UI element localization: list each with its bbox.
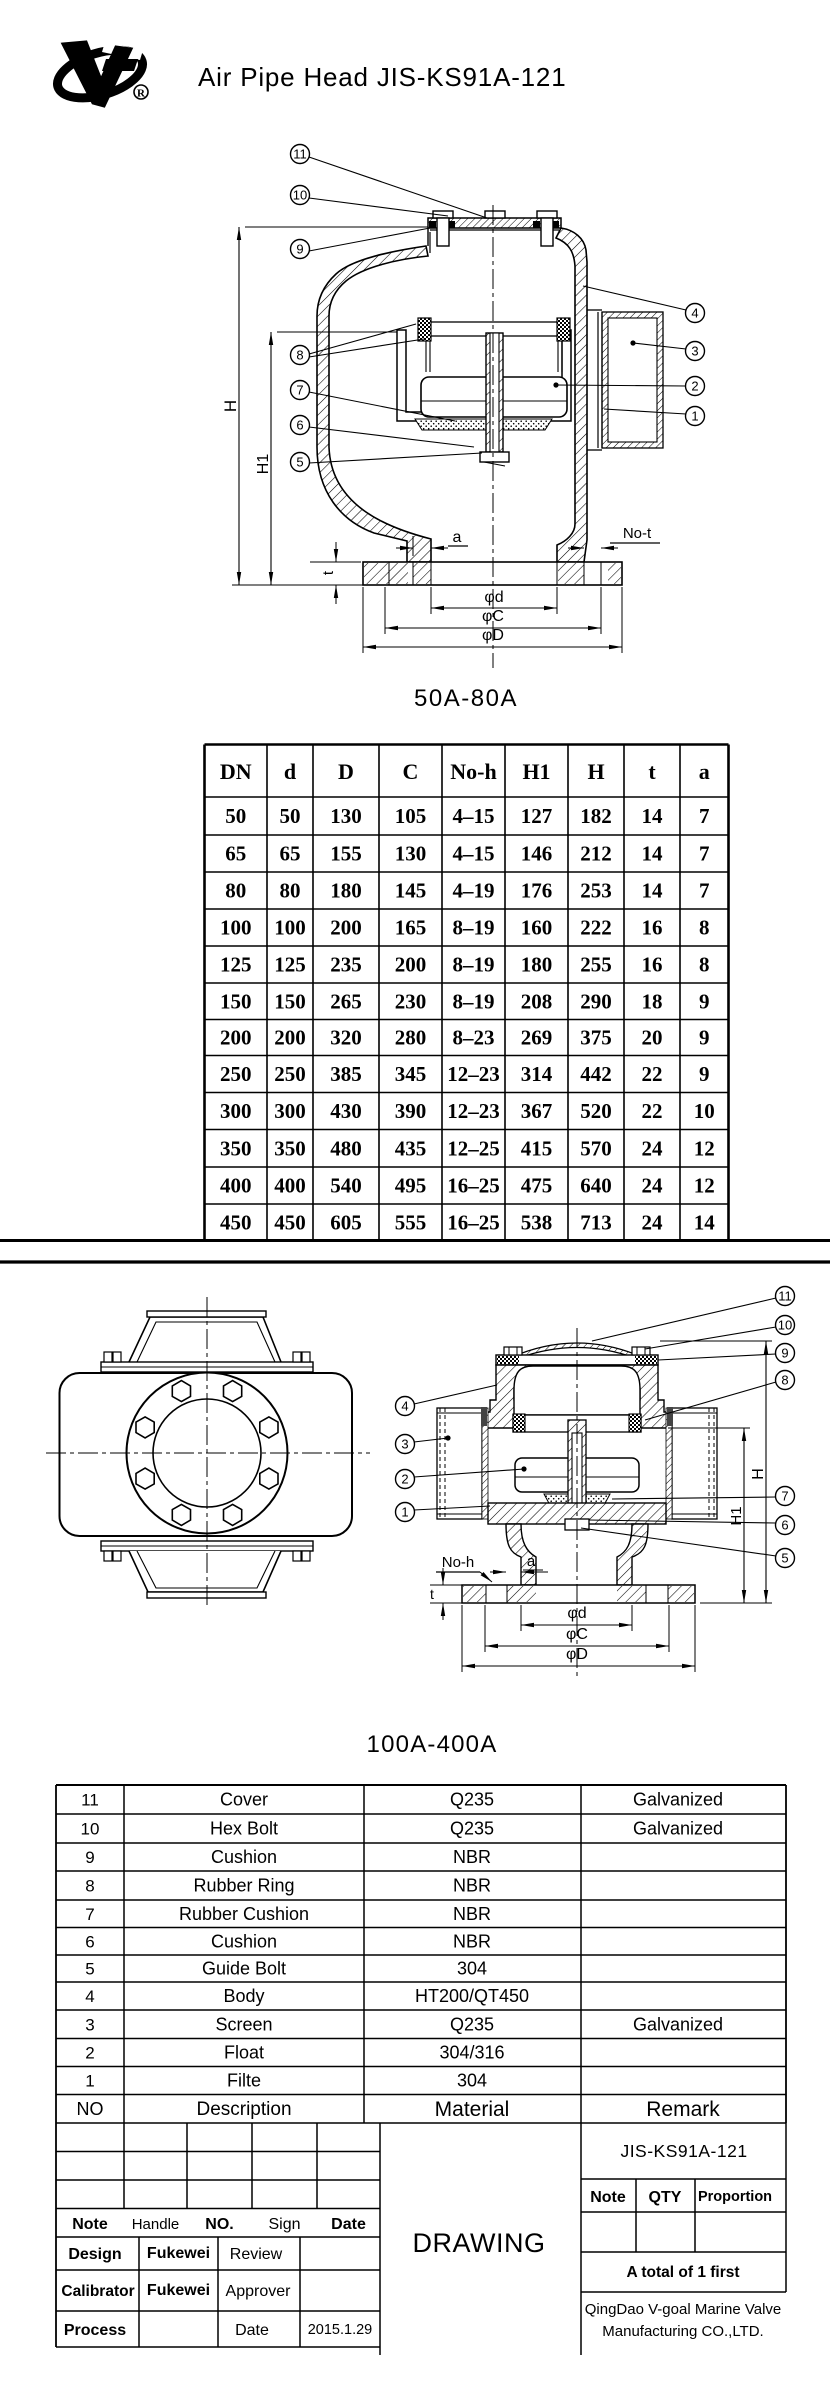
svg-text:150: 150 <box>274 989 306 1013</box>
svg-text:65: 65 <box>225 842 246 866</box>
svg-text:Galvanized: Galvanized <box>633 1819 723 1839</box>
svg-text:d: d <box>284 759 296 784</box>
svg-text:127: 127 <box>521 804 553 828</box>
svg-text:5: 5 <box>781 1551 788 1566</box>
svg-text:265: 265 <box>330 989 362 1013</box>
svg-text:345: 345 <box>395 1062 427 1086</box>
svg-text:180: 180 <box>330 879 362 903</box>
svg-text:176: 176 <box>521 879 553 903</box>
svg-text:3: 3 <box>691 344 698 359</box>
svg-text:No-t: No-t <box>623 525 652 542</box>
svg-text:Calibrator: Calibrator <box>61 2283 134 2300</box>
svg-text:250: 250 <box>274 1062 306 1086</box>
svg-text:Guide Bolt: Guide Bolt <box>202 1959 286 1979</box>
svg-text:No-h: No-h <box>442 1554 475 1571</box>
svg-text:10: 10 <box>293 188 307 203</box>
svg-text:2: 2 <box>691 379 698 394</box>
svg-text:6: 6 <box>296 418 303 433</box>
svg-text:5: 5 <box>85 1960 94 1979</box>
svg-text:1: 1 <box>85 2072 94 2091</box>
svg-text:4–19: 4–19 <box>453 879 495 903</box>
svg-text:385: 385 <box>330 1062 362 1086</box>
svg-text:8: 8 <box>296 348 303 363</box>
svg-text:Q235: Q235 <box>450 1819 494 1839</box>
svg-text:Rubber Ring: Rubber Ring <box>193 1876 294 1896</box>
svg-text:320: 320 <box>330 1026 362 1050</box>
svg-text:390: 390 <box>395 1099 427 1123</box>
svg-text:100: 100 <box>220 916 252 940</box>
svg-text:NO: NO <box>77 2099 104 2119</box>
svg-text:300: 300 <box>220 1099 252 1123</box>
svg-text:145: 145 <box>395 879 427 903</box>
svg-text:12–23: 12–23 <box>447 1062 500 1086</box>
svg-text:100A-400A: 100A-400A <box>367 1731 498 1758</box>
svg-text:130: 130 <box>395 842 427 866</box>
svg-text:H1: H1 <box>255 454 272 475</box>
svg-text:605: 605 <box>330 1210 362 1234</box>
svg-text:Body: Body <box>223 1986 264 2006</box>
svg-text:22: 22 <box>642 1062 663 1086</box>
svg-text:12–25: 12–25 <box>447 1136 500 1160</box>
svg-text:125: 125 <box>274 953 306 977</box>
svg-text:Cover: Cover <box>220 1790 268 1810</box>
svg-text:Fukewei: Fukewei <box>147 2245 210 2262</box>
svg-text:475: 475 <box>521 1174 553 1198</box>
svg-text:80: 80 <box>225 879 246 903</box>
svg-text:14: 14 <box>642 842 664 866</box>
svg-text:250: 250 <box>220 1062 252 1086</box>
svg-text:NBR: NBR <box>453 1904 491 1924</box>
svg-text:9: 9 <box>699 989 710 1013</box>
svg-text:Remark: Remark <box>646 2098 720 2121</box>
svg-text:400: 400 <box>220 1174 252 1198</box>
svg-text:304: 304 <box>457 2071 487 2091</box>
svg-text:367: 367 <box>521 1099 553 1123</box>
svg-text:No-h: No-h <box>450 759 496 784</box>
svg-text:8–23: 8–23 <box>453 1026 495 1050</box>
svg-text:7: 7 <box>85 1905 94 1924</box>
svg-text:7: 7 <box>296 383 303 398</box>
svg-text:Screen: Screen <box>215 2014 272 2034</box>
svg-text:H1: H1 <box>522 759 550 784</box>
svg-text:Date: Date <box>235 2322 269 2339</box>
svg-text:208: 208 <box>521 989 553 1013</box>
svg-text:50: 50 <box>280 804 301 828</box>
svg-text:165: 165 <box>395 916 427 940</box>
svg-text:212: 212 <box>580 842 612 866</box>
svg-text:12: 12 <box>694 1136 715 1160</box>
svg-text:100: 100 <box>274 916 306 940</box>
svg-text:6: 6 <box>781 1518 788 1533</box>
svg-text:125: 125 <box>220 953 252 977</box>
svg-text:24: 24 <box>642 1174 664 1198</box>
svg-text:8: 8 <box>699 953 710 977</box>
svg-text:300: 300 <box>274 1099 306 1123</box>
svg-text:146: 146 <box>521 842 553 866</box>
svg-text:9: 9 <box>296 242 303 257</box>
svg-text:713: 713 <box>580 1210 612 1234</box>
svg-text:t: t <box>320 570 337 575</box>
svg-text:HT200/QT450: HT200/QT450 <box>415 1986 529 2006</box>
svg-text:6: 6 <box>85 1932 94 1951</box>
svg-text:314: 314 <box>521 1062 553 1086</box>
svg-text:200: 200 <box>330 916 362 940</box>
svg-text:H: H <box>221 400 240 412</box>
svg-text:14: 14 <box>642 804 664 828</box>
svg-text:7: 7 <box>699 879 710 903</box>
svg-text:538: 538 <box>521 1210 553 1234</box>
svg-text:269: 269 <box>521 1026 553 1050</box>
svg-text:555: 555 <box>395 1210 427 1234</box>
svg-text:φd: φd <box>484 589 503 606</box>
svg-text:540: 540 <box>330 1174 362 1198</box>
svg-text:Cushion: Cushion <box>211 1931 277 1951</box>
svg-text:Galvanized: Galvanized <box>633 1790 723 1810</box>
svg-text:14: 14 <box>642 879 664 903</box>
svg-text:Fukewei: Fukewei <box>147 2282 210 2299</box>
svg-text:24: 24 <box>642 1210 664 1234</box>
svg-text:4–15: 4–15 <box>453 804 495 828</box>
svg-text:12: 12 <box>694 1174 715 1198</box>
svg-text:H: H <box>587 759 604 784</box>
svg-text:16–25: 16–25 <box>447 1174 500 1198</box>
svg-text:t: t <box>430 1586 434 1602</box>
svg-text:12–23: 12–23 <box>447 1099 500 1123</box>
svg-text:D: D <box>338 759 354 784</box>
svg-text:304: 304 <box>457 1959 487 1979</box>
svg-text:QingDao V-goal Marine Valve: QingDao V-goal Marine Valve <box>585 2301 782 2318</box>
svg-text:Process: Process <box>64 2322 126 2339</box>
svg-text:8–19: 8–19 <box>453 916 495 940</box>
svg-text:a: a <box>699 759 710 784</box>
svg-text:50A-80A: 50A-80A <box>414 685 518 712</box>
svg-text:Rubber Cushion: Rubber Cushion <box>179 1904 309 1924</box>
svg-text:Cushion: Cushion <box>211 1847 277 1867</box>
svg-text:11: 11 <box>778 1289 792 1304</box>
svg-text:7: 7 <box>781 1489 788 1504</box>
svg-text:5: 5 <box>296 455 303 470</box>
svg-text:350: 350 <box>220 1136 252 1160</box>
svg-text:4: 4 <box>85 1987 94 2006</box>
svg-text:80: 80 <box>280 879 301 903</box>
svg-text:2015.1.29: 2015.1.29 <box>308 2322 373 2338</box>
svg-text:Q235: Q235 <box>450 2014 494 2034</box>
svg-text:22: 22 <box>642 1099 663 1123</box>
svg-text:10: 10 <box>81 1820 100 1839</box>
svg-text:640: 640 <box>580 1174 612 1198</box>
svg-text:415: 415 <box>521 1136 553 1160</box>
svg-text:18: 18 <box>642 989 663 1013</box>
svg-text:4–15: 4–15 <box>453 842 495 866</box>
svg-text:255: 255 <box>580 953 612 977</box>
svg-text:8: 8 <box>85 1877 94 1896</box>
svg-text:a: a <box>527 1553 536 1570</box>
svg-text:400: 400 <box>274 1174 306 1198</box>
svg-text:8–19: 8–19 <box>453 953 495 977</box>
svg-text:Date: Date <box>331 2216 366 2233</box>
svg-text:160: 160 <box>521 916 553 940</box>
svg-text:1: 1 <box>691 409 698 424</box>
svg-text:155: 155 <box>330 842 362 866</box>
svg-text:24: 24 <box>642 1136 664 1160</box>
svg-text:NBR: NBR <box>453 1931 491 1951</box>
svg-text:Float: Float <box>224 2043 264 2063</box>
svg-text:A total of 1 first: A total of 1 first <box>626 2264 739 2281</box>
svg-text:QTY: QTY <box>649 2189 682 2206</box>
svg-text:20: 20 <box>642 1026 663 1050</box>
svg-text:t: t <box>648 759 656 784</box>
svg-text:Design: Design <box>68 2246 121 2263</box>
svg-text:4: 4 <box>401 1399 408 1414</box>
svg-text:9: 9 <box>699 1026 710 1050</box>
svg-text:1: 1 <box>401 1505 408 1520</box>
svg-text:150: 150 <box>220 989 252 1013</box>
svg-text:Q235: Q235 <box>450 1790 494 1810</box>
svg-text:3: 3 <box>85 2015 94 2034</box>
svg-text:3: 3 <box>401 1437 408 1452</box>
svg-text:430: 430 <box>330 1099 362 1123</box>
svg-text:Note: Note <box>72 2216 108 2233</box>
svg-text:200: 200 <box>395 953 427 977</box>
svg-text:495: 495 <box>395 1174 427 1198</box>
svg-text:16–25: 16–25 <box>447 1210 500 1234</box>
svg-text:450: 450 <box>220 1210 252 1234</box>
svg-text:Hex Bolt: Hex Bolt <box>210 1819 278 1839</box>
svg-text:14: 14 <box>694 1210 716 1234</box>
svg-text:9: 9 <box>781 1346 788 1361</box>
svg-text:350: 350 <box>274 1136 306 1160</box>
svg-text:Handle: Handle <box>132 2216 180 2233</box>
svg-text:Galvanized: Galvanized <box>633 2014 723 2034</box>
svg-text:NBR: NBR <box>453 1876 491 1896</box>
svg-text:11: 11 <box>81 1791 99 1810</box>
svg-text:480: 480 <box>330 1136 362 1160</box>
svg-text:16: 16 <box>642 916 663 940</box>
svg-text:11: 11 <box>293 147 307 162</box>
svg-text:180: 180 <box>521 953 553 977</box>
svg-text:Note: Note <box>590 2189 626 2206</box>
svg-text:Sign: Sign <box>268 2216 300 2233</box>
svg-text:105: 105 <box>395 804 427 828</box>
svg-text:Description: Description <box>196 2099 291 2120</box>
svg-text:65: 65 <box>280 842 301 866</box>
svg-text:520: 520 <box>580 1099 612 1123</box>
svg-text:50: 50 <box>225 804 246 828</box>
svg-text:C: C <box>403 759 419 784</box>
svg-text:7: 7 <box>699 842 710 866</box>
svg-text:7: 7 <box>699 804 710 828</box>
svg-text:435: 435 <box>395 1136 427 1160</box>
svg-text:R: R <box>137 88 146 100</box>
svg-text:230: 230 <box>395 989 427 1013</box>
svg-text:JIS-KS91A-121: JIS-KS91A-121 <box>620 2141 747 2161</box>
svg-text:290: 290 <box>580 989 612 1013</box>
svg-text:Material: Material <box>435 2098 510 2121</box>
svg-text:Filte: Filte <box>227 2071 261 2091</box>
svg-text:a: a <box>453 529 462 546</box>
svg-text:Review: Review <box>230 2246 283 2263</box>
svg-text:200: 200 <box>274 1026 306 1050</box>
svg-text:570: 570 <box>580 1136 612 1160</box>
svg-text:304/316: 304/316 <box>439 2043 504 2063</box>
svg-text:9: 9 <box>85 1848 94 1867</box>
svg-text:130: 130 <box>330 804 362 828</box>
svg-text:375: 375 <box>580 1026 612 1050</box>
svg-text:235: 235 <box>330 953 362 977</box>
svg-text:Proportion: Proportion <box>698 2189 772 2205</box>
svg-text:10: 10 <box>694 1099 715 1123</box>
svg-text:2: 2 <box>401 1472 408 1487</box>
svg-text:DN: DN <box>220 759 252 784</box>
svg-text:Manufacturing CO.,LTD.: Manufacturing CO.,LTD. <box>602 2323 763 2340</box>
svg-text:8: 8 <box>699 916 710 940</box>
svg-text:280: 280 <box>395 1026 427 1050</box>
svg-text:H: H <box>750 1468 767 1480</box>
svg-text:9: 9 <box>699 1062 710 1086</box>
svg-text:8: 8 <box>781 1373 788 1388</box>
svg-text:16: 16 <box>642 953 663 977</box>
svg-text:222: 222 <box>580 916 612 940</box>
svg-text:4: 4 <box>691 306 698 321</box>
svg-text:450: 450 <box>274 1210 306 1234</box>
svg-text:182: 182 <box>580 804 612 828</box>
svg-text:10: 10 <box>778 1318 792 1333</box>
svg-text:NBR: NBR <box>453 1847 491 1867</box>
svg-text:2: 2 <box>85 2044 94 2063</box>
svg-text:8–19: 8–19 <box>453 989 495 1013</box>
svg-text:200: 200 <box>220 1026 252 1050</box>
svg-text:253: 253 <box>580 879 612 903</box>
svg-text:442: 442 <box>580 1062 612 1086</box>
svg-text:Air Pipe Head JIS-KS91A-121: Air Pipe Head JIS-KS91A-121 <box>198 62 566 92</box>
svg-text:NO.: NO. <box>205 2216 233 2233</box>
svg-text:DRAWING: DRAWING <box>413 2228 546 2258</box>
svg-text:Approver: Approver <box>226 2283 292 2300</box>
